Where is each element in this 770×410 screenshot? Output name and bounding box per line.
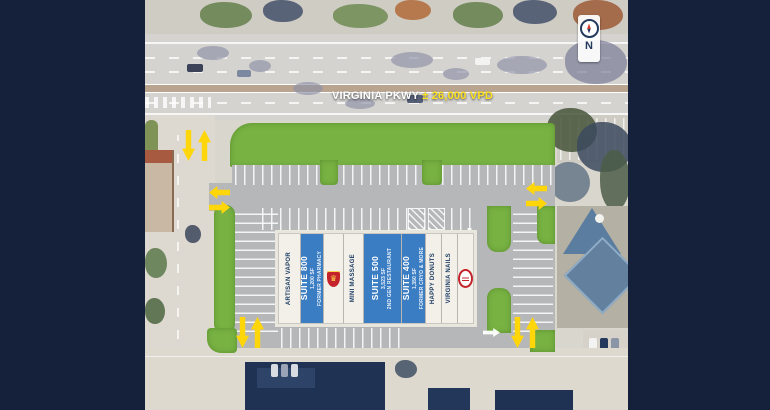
suite-number: SUITE 400	[402, 256, 412, 300]
landscape-strip-top	[230, 123, 555, 167]
vehicle	[271, 364, 278, 377]
lane-line	[145, 42, 628, 44]
suite-unit-mini-massage: MINI MASSAGE	[343, 234, 363, 323]
tree-shadow	[443, 68, 469, 80]
suite-unit-crest-tenant: ♛	[323, 234, 343, 323]
suite-note: 2ND GEN RESTAURANT	[388, 248, 394, 309]
vehicle	[237, 70, 251, 77]
north-indicator: N	[578, 15, 600, 62]
landscape-island-east-upper	[487, 206, 511, 252]
vehicle	[281, 364, 288, 377]
round-logo-icon	[458, 269, 473, 288]
no-parking-hatch	[428, 208, 445, 230]
tree-shadow	[497, 56, 547, 74]
landscape-island-southwest	[207, 328, 237, 353]
tree	[395, 360, 417, 378]
parking-row-north	[235, 165, 553, 185]
red-roof-band	[145, 150, 172, 163]
suite-unit-400: SUITE 400 1,350 SF FORMER CRYO & MORE	[401, 234, 425, 323]
letterbox-frame: ARTISAN VAPOR SUITE 800 1,200 SF FORMER …	[0, 0, 770, 410]
landscape-island-east-lower	[487, 288, 511, 333]
crest-logo-icon: ♛	[327, 271, 340, 287]
suite-unit-800: SUITE 800 1,200 SF FORMER PHARMACY	[300, 234, 323, 323]
tree	[185, 225, 201, 243]
no-parking-hatch	[408, 208, 425, 230]
cupola	[595, 214, 604, 223]
suite-size: 1,350 SF	[413, 268, 419, 289]
suite-number: SUITE 800	[300, 256, 310, 300]
tree-autumn	[395, 0, 431, 20]
context-building-south	[495, 390, 573, 410]
lane-line-dashed	[145, 102, 628, 104]
tree-shadow	[249, 60, 271, 72]
tenant-label: ARTISAN VAPOR	[286, 252, 293, 305]
tenant-label: VIRGINIA NAILS	[446, 253, 453, 303]
lane-line-dashed	[145, 71, 628, 73]
tree	[200, 2, 252, 28]
tree	[600, 150, 628, 210]
landscape-island-northeast	[537, 206, 555, 244]
road-name: VIRGINIA PKWY	[332, 90, 419, 102]
tree-shadow	[391, 52, 433, 68]
tenant-label: HAPPY DONUTS	[430, 253, 437, 304]
suite-unit-artisan-vapor: ARTISAN VAPOR	[279, 234, 300, 323]
tree	[550, 162, 590, 202]
tenant-label: MINI MASSAGE	[350, 254, 357, 302]
vehicle	[187, 64, 203, 72]
parking-row-west	[235, 212, 278, 332]
tree	[513, 0, 557, 24]
suite-unit-virginia-nails: VIRGINIA NAILS	[441, 234, 457, 323]
landscape-tab	[320, 160, 338, 185]
tree	[333, 4, 388, 28]
suite-unit-round-logo-tenant	[457, 234, 473, 323]
parking-row-south	[281, 328, 407, 348]
landscape-island-west	[214, 205, 235, 333]
landscape-tab	[422, 160, 442, 185]
compass-icon	[580, 19, 599, 38]
road-label: VIRGINIA PKWY ± 26,000 VPD	[305, 90, 520, 102]
tree-shadow	[197, 46, 229, 60]
vehicle	[475, 58, 490, 65]
vehicle	[291, 364, 298, 377]
suite-note: FORMER CRYO & MORE	[420, 247, 426, 309]
north-letter: N	[585, 41, 593, 52]
suite-note: FORMER PHARMACY	[318, 251, 323, 306]
tree	[263, 0, 303, 22]
building-footprint: ARTISAN VAPOR SUITE 800 1,200 SF FORMER …	[278, 233, 474, 324]
suite-unit-happy-donuts: HAPPY DONUTS	[425, 234, 441, 323]
suite-unit-500: SUITE 500 3,523 SF 2ND GEN RESTAURANT	[363, 234, 401, 323]
crosswalk	[145, 97, 211, 108]
aerial-photo: ARTISAN VAPOR SUITE 800 1,200 SF FORMER …	[145, 0, 628, 410]
tree	[145, 298, 165, 324]
suite-number: SUITE 500	[371, 256, 381, 300]
tree	[453, 2, 503, 28]
tree	[145, 248, 167, 278]
context-building-south	[428, 388, 470, 410]
road-traffic-count: ± 26,000 VPD	[422, 90, 493, 102]
sidewalk-line	[145, 356, 628, 357]
